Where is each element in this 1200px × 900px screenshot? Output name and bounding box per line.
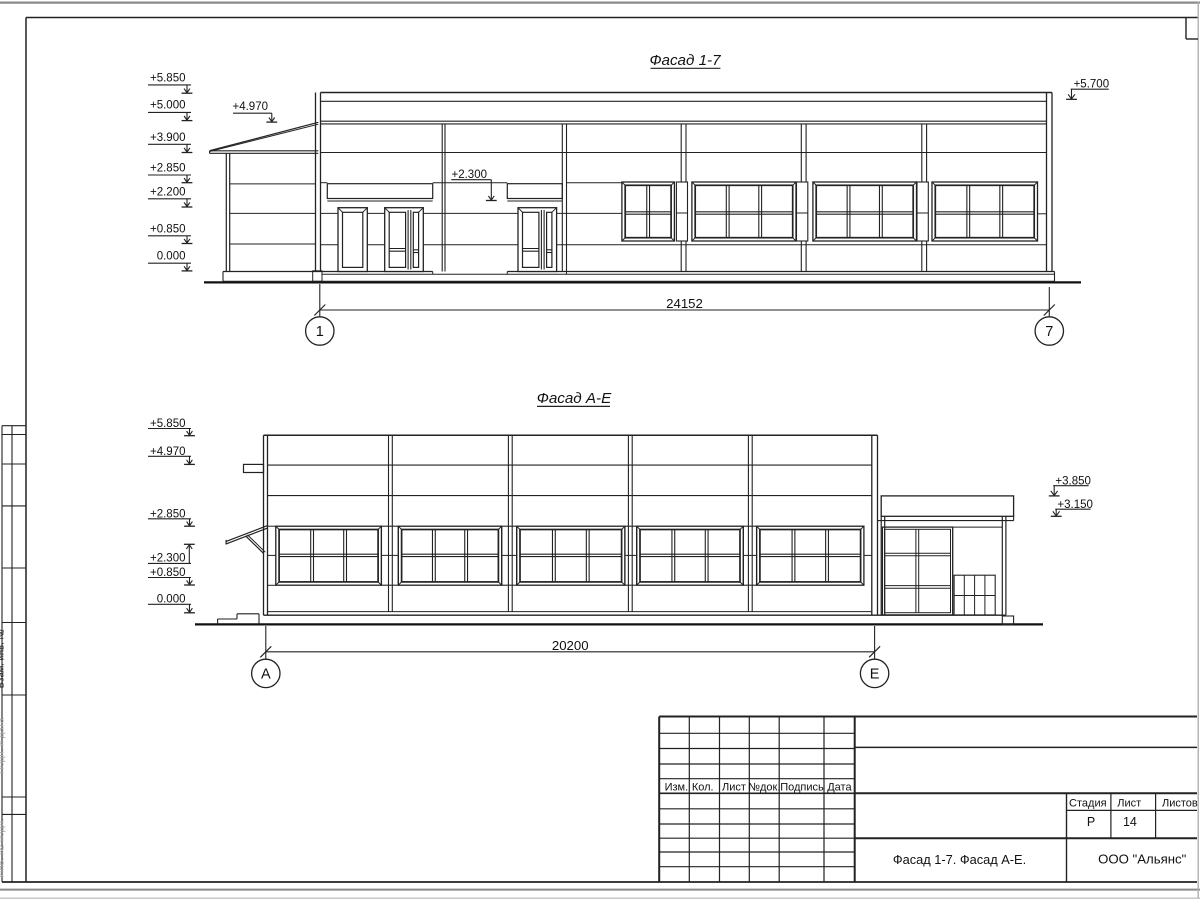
svg-text:Лист: Лист <box>722 781 746 793</box>
svg-text:+5.850: +5.850 <box>150 73 186 85</box>
svg-text:Р: Р <box>1087 815 1095 829</box>
svg-text:24152: 24152 <box>666 296 703 311</box>
svg-text:№док.: №док. <box>748 781 780 793</box>
svg-text:20200: 20200 <box>552 638 589 653</box>
svg-text:Фасад 1-7: Фасад 1-7 <box>649 52 721 69</box>
svg-text:Подпись: Подпись <box>780 781 824 793</box>
svg-text:Изм.: Изм. <box>665 781 689 793</box>
svg-text:Лист: Лист <box>1117 798 1141 810</box>
svg-text:Дата: Дата <box>827 781 852 793</box>
svg-text:+5.700: +5.700 <box>1074 78 1110 90</box>
svg-text:7: 7 <box>1045 324 1053 340</box>
svg-text:+2.300: +2.300 <box>452 169 488 181</box>
svg-text:14: 14 <box>1123 815 1137 829</box>
svg-text:Подп. и дата: Подп. и дата <box>0 717 6 774</box>
svg-text:+0.850: +0.850 <box>150 224 186 236</box>
svg-text:ООО "Альянс": ООО "Альянс" <box>1098 852 1186 867</box>
svg-text:Е: Е <box>870 666 880 682</box>
svg-text:Взам. инв. №: Взам. инв. № <box>0 629 6 688</box>
svg-text:Фасад 1-7. Фасад А-Е.: Фасад 1-7. Фасад А-Е. <box>893 852 1026 867</box>
svg-text:1: 1 <box>316 324 324 340</box>
svg-text:Фасад А-Е: Фасад А-Е <box>537 390 612 407</box>
svg-text:А: А <box>261 666 271 682</box>
svg-text:Инв. № подл.: Инв. № подл. <box>0 818 6 877</box>
svg-text:+2.850: +2.850 <box>150 163 186 175</box>
svg-text:+2.200: +2.200 <box>150 187 186 199</box>
svg-text:+5.000: +5.000 <box>150 100 186 112</box>
svg-text:Листов: Листов <box>1162 798 1198 810</box>
svg-text:Кол.: Кол. <box>692 781 714 793</box>
svg-text:+4.970: +4.970 <box>233 101 269 113</box>
svg-text:0.000: 0.000 <box>157 250 186 262</box>
svg-text:+3.900: +3.900 <box>150 132 186 144</box>
svg-text:Стадия: Стадия <box>1069 798 1107 810</box>
